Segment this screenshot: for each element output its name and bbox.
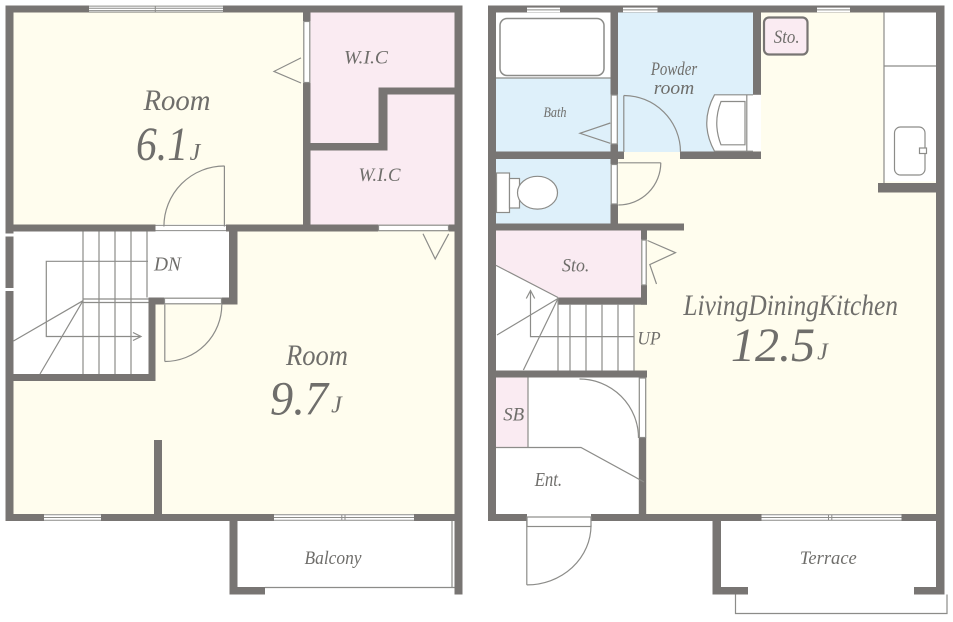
svg-text:UP: UP — [637, 329, 661, 350]
svg-text:W.I.C: W.I.C — [359, 166, 402, 186]
svg-text:J: J — [331, 393, 343, 419]
svg-text:Ent.: Ent. — [534, 469, 562, 491]
svg-text:Room: Room — [143, 84, 211, 117]
svg-text:Room: Room — [285, 339, 348, 372]
svg-text:J: J — [817, 340, 829, 366]
svg-text:room: room — [654, 78, 695, 99]
svg-text:6.1: 6.1 — [136, 118, 188, 171]
svg-text:Sto.: Sto. — [562, 256, 589, 277]
svg-text:Powder: Powder — [650, 59, 698, 80]
svg-text:Balcony: Balcony — [305, 548, 363, 569]
svg-text:SB: SB — [503, 405, 524, 426]
svg-text:Bath: Bath — [544, 105, 567, 121]
svg-text:J: J — [190, 140, 202, 166]
svg-text:DN: DN — [153, 254, 183, 276]
svg-text:Sto.: Sto. — [774, 27, 800, 48]
svg-text:9.7: 9.7 — [270, 373, 330, 426]
svg-text:LivingDiningKitchen: LivingDiningKitchen — [683, 289, 898, 322]
svg-text:W.I.C: W.I.C — [344, 49, 389, 69]
svg-text:Terrace: Terrace — [800, 548, 857, 569]
svg-text:12.5: 12.5 — [731, 319, 815, 372]
